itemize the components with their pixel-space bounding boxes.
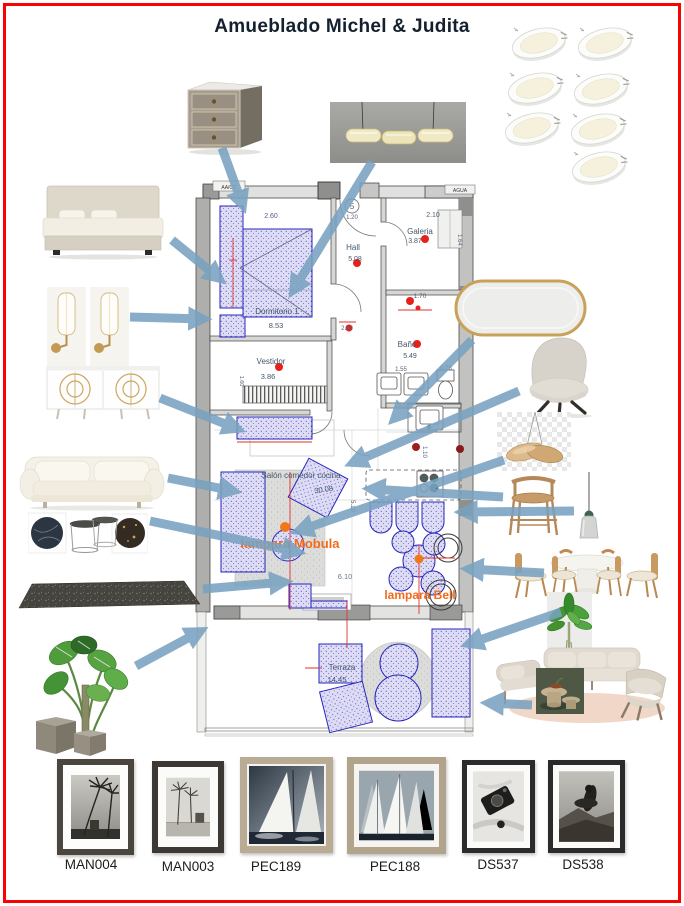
oval-mirror-icon (454, 279, 587, 337)
downlight-image[interactable] (501, 107, 563, 156)
oval-mirror-image[interactable] (454, 279, 587, 337)
bar-stool-icon (502, 472, 565, 538)
plan-room-dormitorio: Dormitorio 1 (255, 307, 299, 316)
bar-stool-image[interactable] (502, 472, 565, 538)
artwork-ds537[interactable] (462, 760, 535, 853)
artwork-man004[interactable] (57, 759, 134, 855)
downlight-icon (570, 68, 632, 112)
downlight-image[interactable] (574, 22, 636, 71)
nightstand-image[interactable] (176, 70, 272, 156)
coffee-tables-photo (536, 668, 584, 714)
artwork-label-ds538: DS538 (528, 857, 638, 872)
moodboard-page: { "title": "Amueblado Michel & Judita", … (0, 0, 684, 906)
linear-pendant-icon (330, 102, 466, 163)
floor-plan[interactable]: AA/CC AGUA 5 1.20 2.60 2.10 1.64 1.70 2.… (193, 178, 480, 742)
palms-photo-art (71, 775, 120, 839)
downlight-icon (501, 107, 563, 151)
sailboat-photo-art (249, 766, 324, 844)
plan-dim-bano-top: 1.70 (414, 293, 427, 300)
sofa-icon (17, 451, 167, 511)
rug-icon (16, 577, 203, 613)
downlight-image[interactable] (508, 22, 570, 71)
plan-dim-galeria-depth: 1.64 (456, 234, 462, 246)
dining-set-image[interactable] (500, 537, 673, 600)
downlight-icon (568, 146, 630, 190)
wall-sconce-icon (47, 287, 129, 366)
plan-dim-salon-depth: 5.10 (349, 500, 355, 512)
outdoor-lounge-icon (492, 644, 673, 726)
sofa-image[interactable] (17, 451, 167, 511)
plan-fixtures (366, 370, 461, 500)
sideboard-image[interactable] (45, 364, 161, 421)
plan-dim-kitchen: 1.10 (421, 446, 427, 458)
palms-beach-photo-art (166, 777, 210, 837)
downlight-icon (574, 22, 636, 66)
plan-lamp-mobula-label: lampara Mobula (241, 536, 341, 551)
plan-dim-dorm: 2.60 (264, 213, 278, 220)
plan-dim-hall: 2.90 (341, 326, 353, 332)
plan-dim-bano: 1.55 (395, 367, 407, 373)
plan-dim-vestidor: 1.60 (238, 376, 244, 387)
plan-dim-galeria: 2.10 (426, 212, 440, 219)
page-title: Amueblado Michel & Judita (142, 16, 542, 38)
propeller-photo-art (559, 770, 614, 843)
plan-area-galeria: 3.87 (408, 238, 422, 245)
armchair-icon (512, 332, 603, 418)
monstera-plant-image[interactable] (28, 623, 138, 756)
plan-area-terraza: 14.45 (328, 675, 347, 684)
plan-area-bano: 5.49 (403, 353, 417, 360)
bell-pendant-image[interactable] (572, 472, 607, 541)
plan-room-galeria: Galeria (407, 227, 433, 236)
monstera-plant-icon (28, 623, 138, 756)
linear-pendant-image[interactable] (330, 102, 466, 163)
downlight-icon (504, 67, 566, 111)
plan-lamp-bell-label: lampara Bell (384, 588, 455, 602)
arrow-monstera (136, 631, 201, 666)
nesting-tables-image[interactable] (28, 511, 148, 554)
armchair-image[interactable] (512, 332, 603, 418)
camera-photo-art (473, 770, 524, 843)
plan-furniture-hatch (220, 206, 470, 733)
nesting-tables-icon (28, 511, 148, 554)
plan-dim-wc: 0.75 (440, 366, 452, 372)
plan-door-arcs (310, 200, 407, 456)
plan-room-vestidor: Vestidor (257, 357, 286, 366)
plan-area-vestidor: 3.86 (261, 372, 276, 381)
artwork-label-man004: MAN004 (36, 857, 146, 872)
dining-set-icon (500, 537, 673, 600)
bed-image[interactable] (37, 184, 169, 260)
plan-label-water: AGUA (453, 188, 468, 194)
plan-room-bano: Baño (398, 340, 417, 349)
plan-wardrobe-hatch (243, 386, 327, 403)
plan-room-salon: Salón comedor cocina (261, 471, 341, 480)
plan-dim-salon-width: 6.10 (338, 572, 353, 581)
plan-room-terraza: Terraza (329, 663, 356, 672)
floor-plan-drawing: AA/CC AGUA 5 1.20 2.60 2.10 1.64 1.70 2.… (193, 178, 480, 742)
plan-room-hall: Hall (346, 243, 360, 252)
plan-area-hall: 5.08 (348, 256, 362, 263)
artwork-pec188[interactable] (347, 757, 446, 854)
plan-label-hvac: AA/CC (221, 185, 237, 191)
plan-entry-number: 5 (350, 202, 355, 211)
artwork-ds538[interactable] (548, 760, 625, 853)
artwork-label-pec188: PEC188 (340, 859, 450, 874)
wall-sconces-image[interactable] (47, 287, 129, 366)
bed-icon (37, 184, 169, 260)
artwork-label-pec189: PEC189 (221, 859, 331, 874)
artwork-man003[interactable] (152, 761, 224, 853)
nightstand-icon (176, 70, 272, 156)
mobula-pendant-icon (497, 412, 571, 471)
outdoor-lounge-image[interactable] (492, 644, 673, 726)
downlight-icon (508, 22, 570, 66)
artwork-pec189[interactable] (240, 757, 333, 853)
bell-pendant-icon (572, 472, 607, 541)
sideboard-icon (45, 364, 161, 421)
mobula-pendant-image[interactable] (497, 412, 571, 471)
plan-dim-entry: 1.20 (346, 215, 358, 221)
rug-image[interactable] (16, 577, 203, 613)
downlight-image[interactable] (568, 146, 630, 195)
regatta-photo-art (359, 768, 434, 843)
plan-area-dormitorio: 8.53 (269, 321, 284, 330)
